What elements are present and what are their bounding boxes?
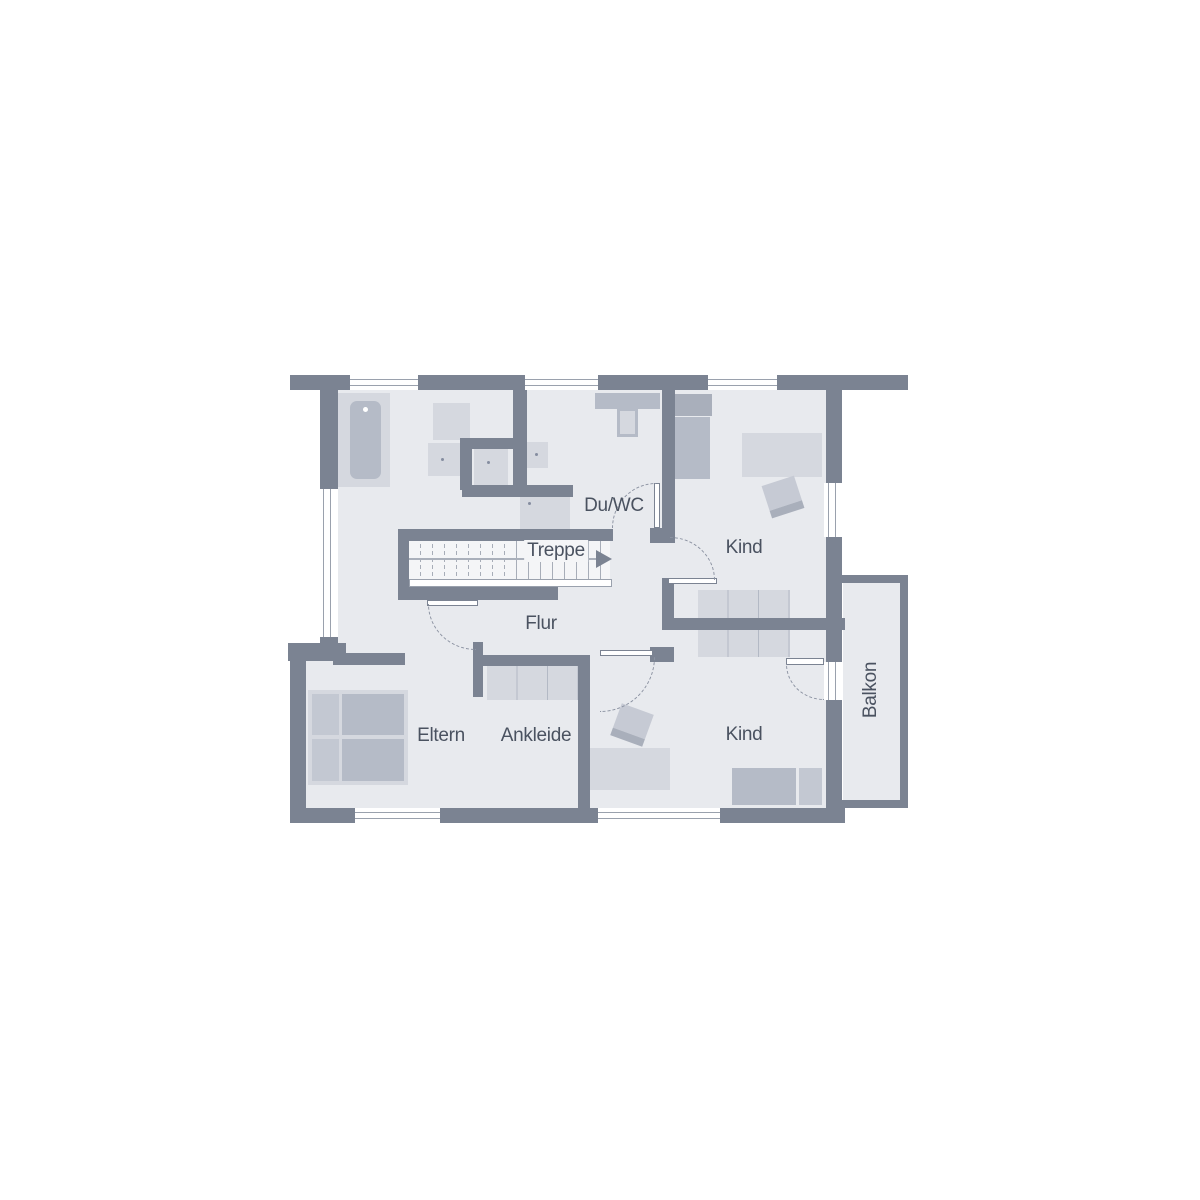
window-right <box>824 483 842 537</box>
parents-bed-pillow-1 <box>312 694 339 735</box>
room-label-parents: Eltern <box>417 725 465 747</box>
balcony-door-window <box>824 662 842 700</box>
bathtub-drain-dot <box>363 407 368 412</box>
duwc-sink-dot <box>535 453 538 456</box>
window-top-1 <box>350 375 418 390</box>
wall-children-divider <box>662 618 845 630</box>
parents-bed-mattress-2 <box>342 739 404 781</box>
room-label-stairs: Treppe <box>524 540 588 562</box>
sink-right-dot <box>487 461 490 464</box>
shower-drain-dot <box>528 502 531 505</box>
balcony-rail-bottom <box>842 800 908 808</box>
washing-machine <box>433 403 470 440</box>
wall-dressing-north <box>483 655 590 666</box>
child-bottom-wardrobe <box>698 630 790 657</box>
stair-direction-arrow-icon <box>596 550 612 568</box>
window-bottom-2 <box>598 808 720 823</box>
child-bottom-desk <box>590 748 670 790</box>
stair-handrail <box>409 579 612 587</box>
window-top-2 <box>525 375 598 390</box>
room-label-balcony: Balkon <box>860 662 882 718</box>
toilet-cistern <box>595 393 660 409</box>
wall-duwc-east <box>662 390 675 530</box>
sink-right <box>474 444 508 487</box>
window-bottom-1 <box>355 808 440 823</box>
wall-right-exterior <box>826 390 842 808</box>
window-left <box>319 489 335 637</box>
wall-vanity-divider <box>460 438 472 490</box>
child-top-desk <box>742 433 822 477</box>
room-label-dressing: Ankleide <box>501 725 571 747</box>
window-top-3 <box>708 375 777 390</box>
room-label-child-top: Kind <box>726 537 763 559</box>
sink-left <box>428 443 462 476</box>
child-top-wardrobe <box>698 590 790 618</box>
child-bottom-bed <box>732 768 796 805</box>
balcony-rail-top <box>842 575 908 583</box>
room-label-shower-wc: Du/WC <box>584 495 644 517</box>
sink-left-dot <box>441 458 444 461</box>
child-bottom-door-leaf <box>600 650 653 656</box>
parents-bed-pillow-2 <box>312 739 339 781</box>
wall-left-lower <box>290 645 306 823</box>
wall-parents-north <box>333 653 405 665</box>
wall-stairs-bottom <box>398 586 558 600</box>
room-label-child-bottom: Kind <box>726 724 763 746</box>
child-top-bed-pillow <box>672 394 712 416</box>
wall-bath-south <box>462 485 573 497</box>
wall-left-upper <box>320 390 338 489</box>
dressing-wardrobe <box>487 666 578 700</box>
bathtub <box>350 401 381 479</box>
floor-plan: Treppe Du/WC Kind Flur Eltern Ankleide K… <box>0 0 1200 1200</box>
stair-treads-dashed-section <box>409 541 505 579</box>
parents-bed-mattress-1 <box>342 694 404 735</box>
toilet-bowl-inner <box>620 411 635 434</box>
wall-stairs-left <box>398 529 409 591</box>
balcony-rail-right <box>900 575 908 808</box>
room-label-hallway: Flur <box>525 613 557 635</box>
wall-vestibule-stub <box>473 642 483 697</box>
child-bottom-bed-pillow <box>799 768 822 805</box>
wall-dressing-east <box>578 655 590 808</box>
child-top-bed <box>672 417 710 479</box>
